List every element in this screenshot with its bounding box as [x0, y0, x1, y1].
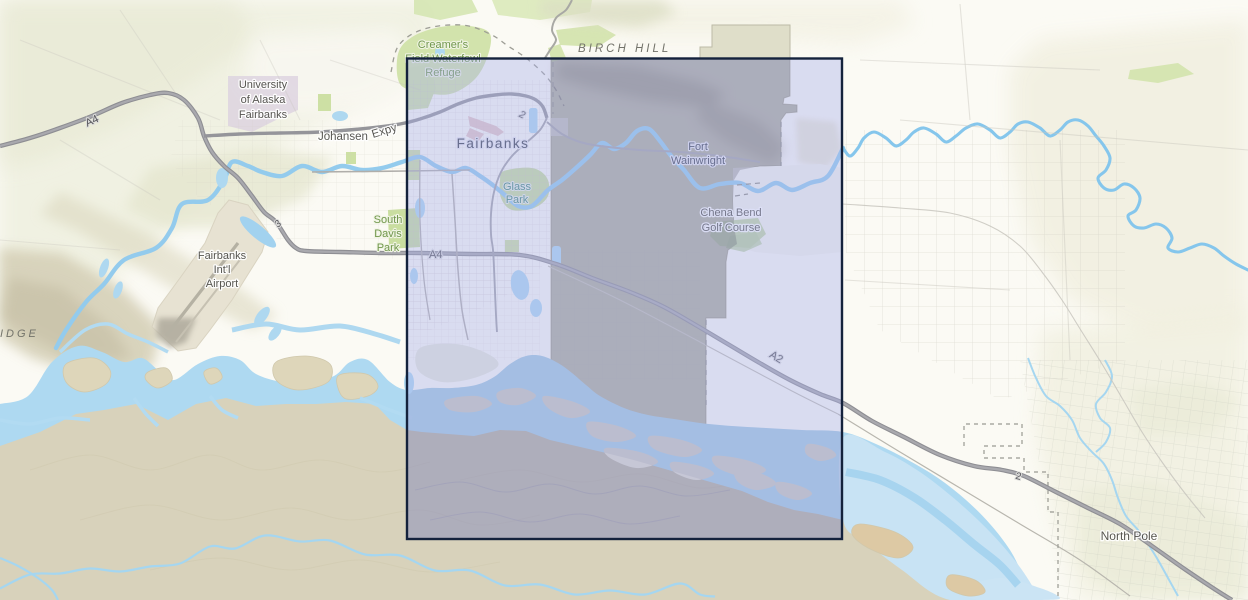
svg-text:of Alaska: of Alaska: [241, 94, 287, 106]
svg-text:BIRCH HILL: BIRCH HILL: [578, 43, 671, 55]
svg-text:Fairbanks: Fairbanks: [239, 109, 288, 121]
svg-text:Int'l: Int'l: [214, 264, 231, 276]
svg-text:Fairbanks: Fairbanks: [198, 250, 247, 262]
svg-text:IDGE: IDGE: [0, 328, 39, 340]
svg-text:Creamer's: Creamer's: [418, 39, 469, 51]
svg-text:Johansen: Johansen: [318, 131, 368, 143]
svg-text:University: University: [239, 79, 288, 91]
svg-text:South: South: [374, 214, 403, 226]
svg-text:Airport: Airport: [206, 278, 238, 290]
svg-text:North Pole: North Pole: [1101, 529, 1158, 543]
svg-text:Park: Park: [377, 242, 400, 254]
svg-text:Davis: Davis: [374, 228, 402, 240]
